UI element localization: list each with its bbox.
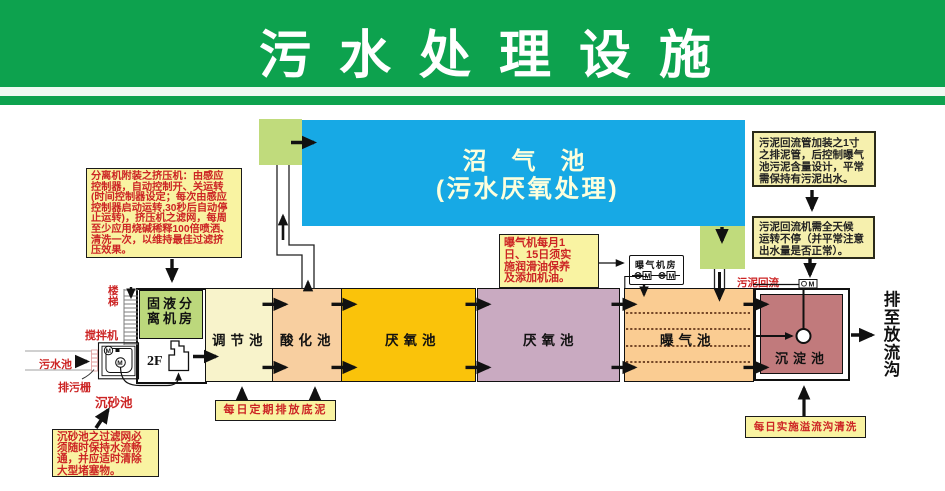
- svg-text:M: M: [669, 274, 675, 281]
- svg-text:M: M: [106, 348, 111, 355]
- svg-text:M: M: [117, 360, 122, 367]
- svg-text:M: M: [645, 274, 651, 281]
